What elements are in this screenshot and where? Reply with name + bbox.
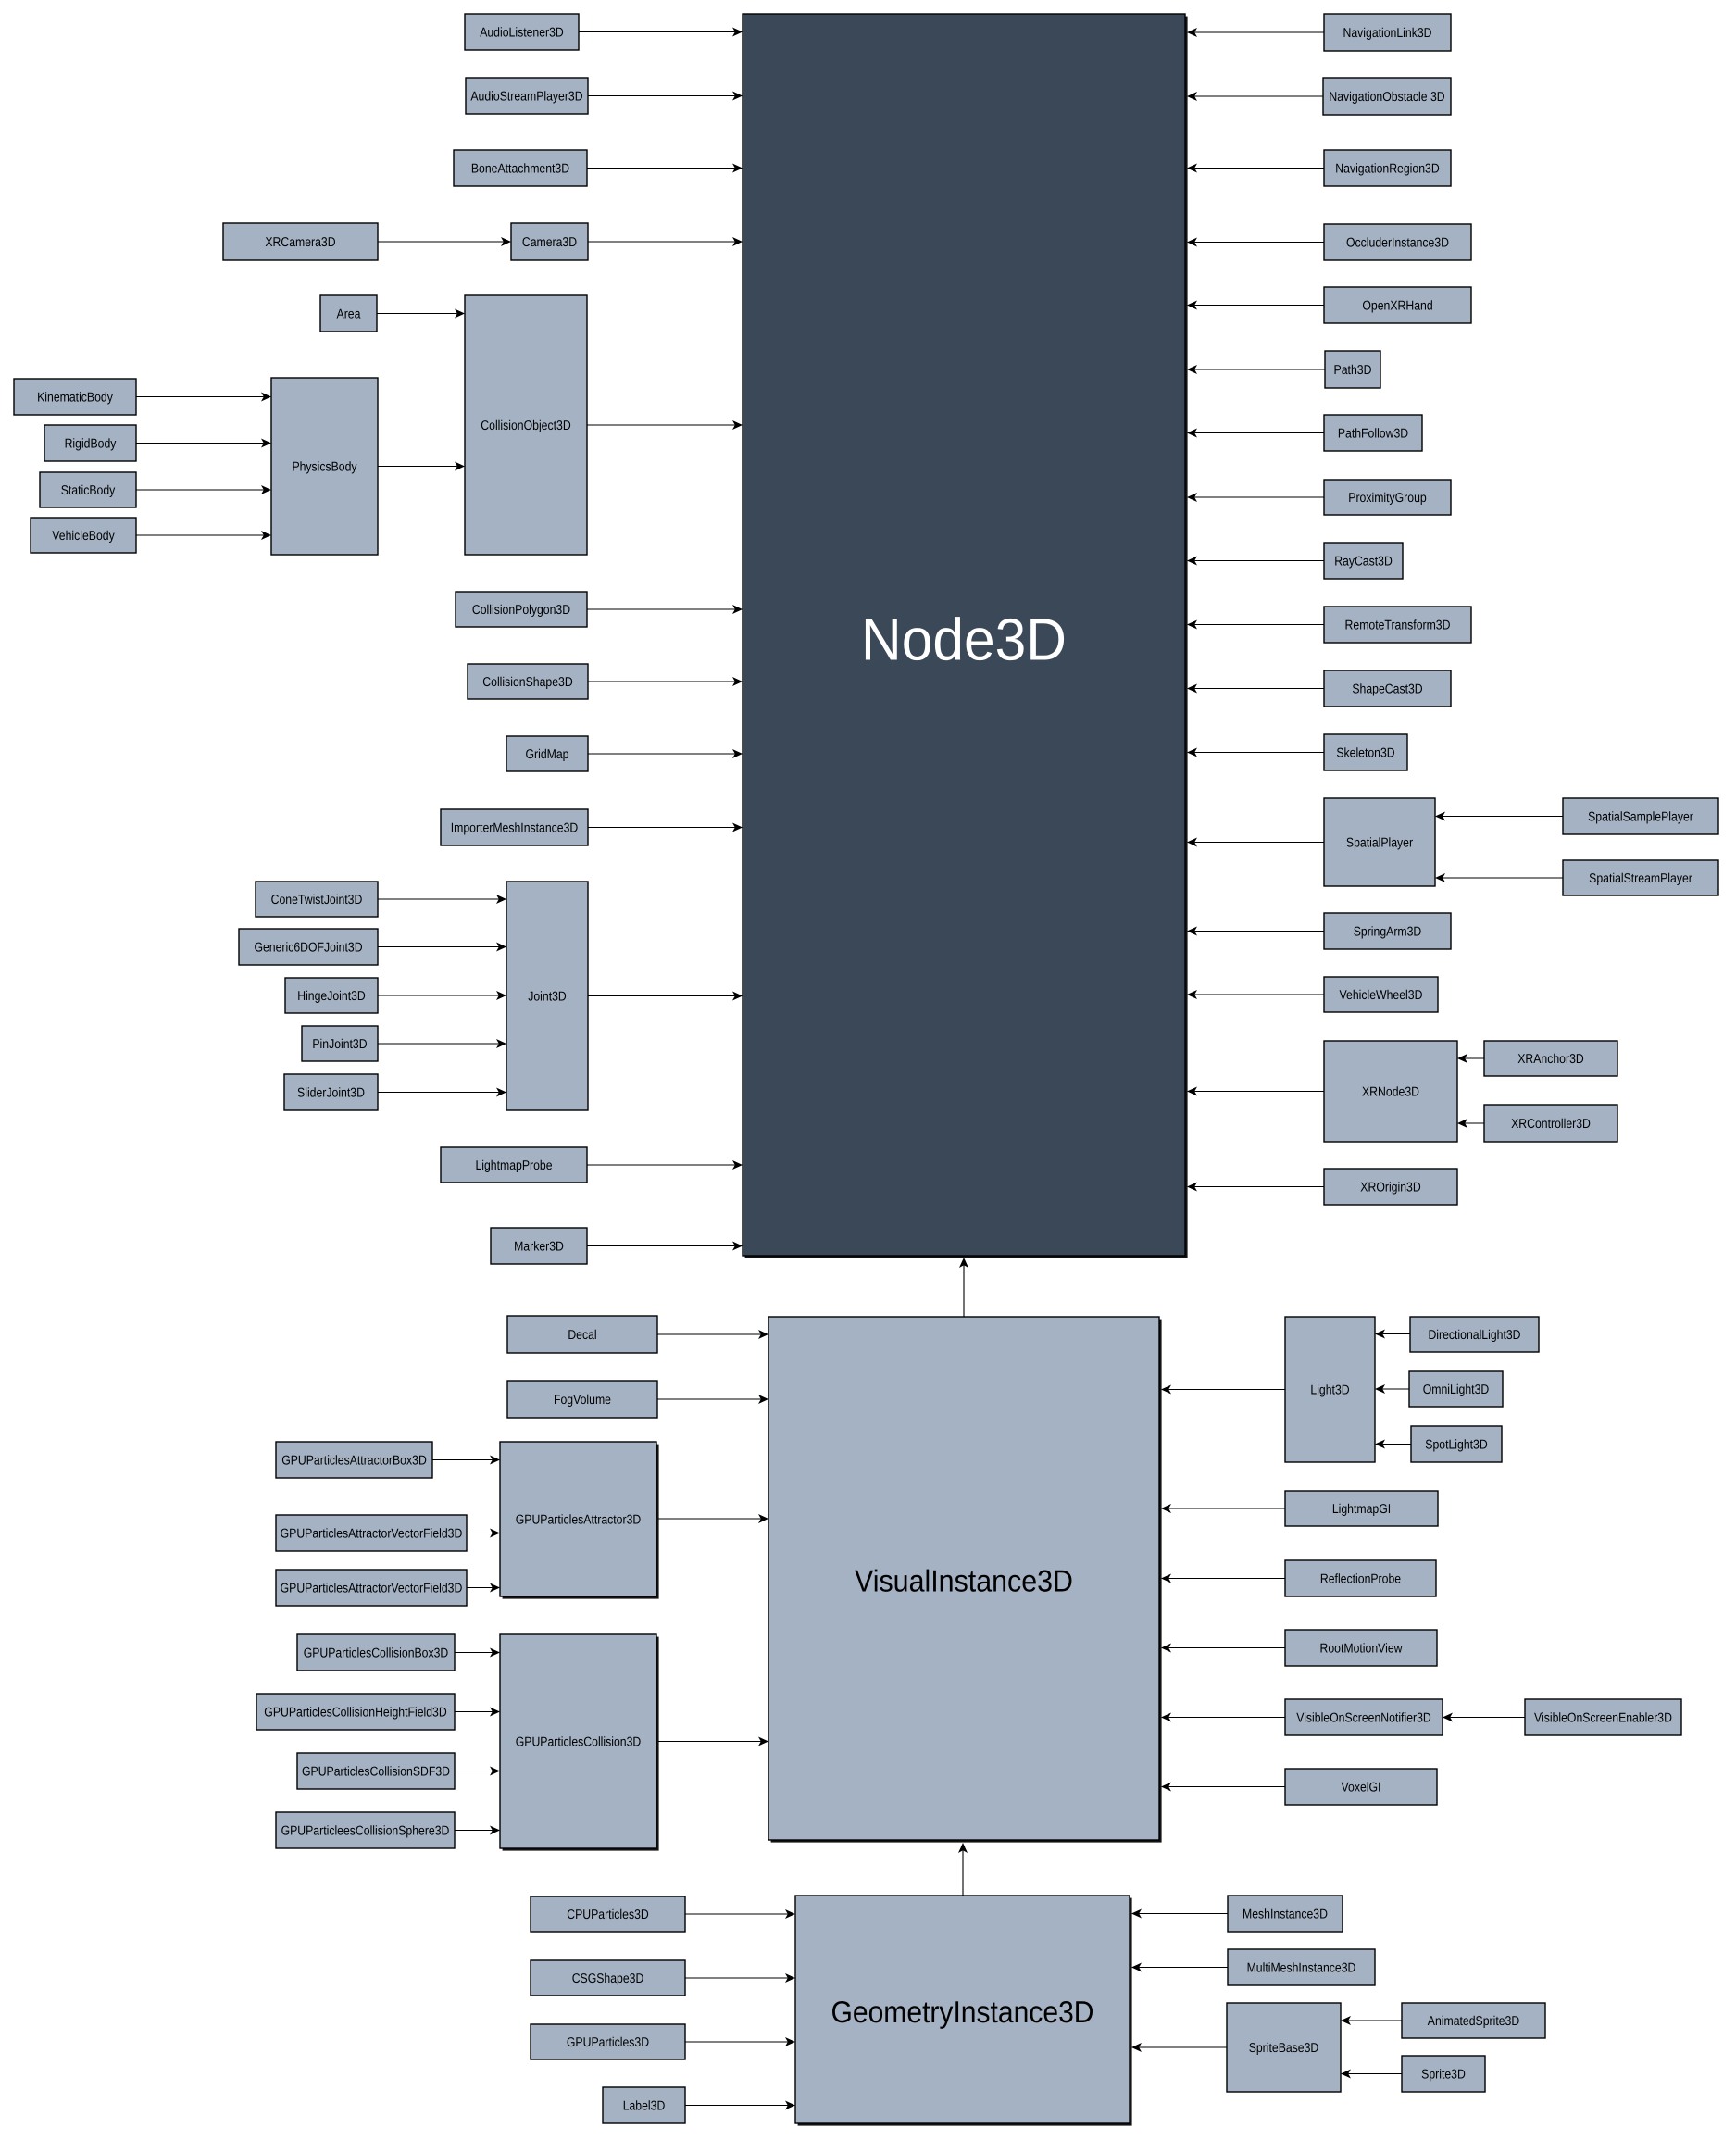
svg-text:Skeleton3D: Skeleton3D <box>1336 746 1394 761</box>
svg-text:NavigationObstacle 3D: NavigationObstacle 3D <box>1329 90 1444 105</box>
svg-text:KinematicBody: KinematicBody <box>37 391 113 406</box>
svg-text:PathFollow3D: PathFollow3D <box>1338 427 1408 442</box>
svg-text:XRNode3D: XRNode3D <box>1362 1085 1419 1100</box>
svg-text:GPUParticlesCollision3D: GPUParticlesCollision3D <box>516 1735 642 1750</box>
svg-text:RemoteTransform3D: RemoteTransform3D <box>1345 619 1451 633</box>
svg-text:CollisionPolygon3D: CollisionPolygon3D <box>472 603 570 618</box>
svg-text:VoxelGI: VoxelGI <box>1342 1781 1381 1796</box>
svg-text:BoneAttachment3D: BoneAttachment3D <box>471 162 569 177</box>
svg-text:CPUParticles3D: CPUParticles3D <box>567 1908 649 1922</box>
svg-text:AnimatedSprite3D: AnimatedSprite3D <box>1428 2014 1519 2029</box>
svg-text:OccluderInstance3D: OccluderInstance3D <box>1346 236 1449 251</box>
svg-text:DirectionalLight3D: DirectionalLight3D <box>1428 1328 1520 1343</box>
svg-text:XRCamera3D: XRCamera3D <box>265 235 335 250</box>
svg-text:CSGShape3D: CSGShape3D <box>572 1971 644 1986</box>
svg-text:VisualInstance3D: VisualInstance3D <box>855 1563 1073 1597</box>
svg-text:SpatialStreamPlayer: SpatialStreamPlayer <box>1589 871 1692 886</box>
svg-text:AudioStreamPlayer3D: AudioStreamPlayer3D <box>470 90 582 105</box>
svg-text:SpatialSamplePlayer: SpatialSamplePlayer <box>1588 810 1693 825</box>
svg-text:RootMotionView: RootMotionView <box>1320 1642 1404 1657</box>
svg-text:ReflectionProbe: ReflectionProbe <box>1320 1572 1401 1587</box>
svg-text:PinJoint3D: PinJoint3D <box>312 1037 367 1052</box>
svg-text:SliderJoint3D: SliderJoint3D <box>297 1086 365 1101</box>
svg-text:CollisionShape3D: CollisionShape3D <box>482 675 572 690</box>
svg-text:GPUParticlesAttractor3D: GPUParticlesAttractor3D <box>516 1513 642 1528</box>
svg-text:VisibleOnScreenNotifier3D: VisibleOnScreenNotifier3D <box>1296 1711 1431 1726</box>
svg-text:StaticBody: StaticBody <box>61 483 116 498</box>
svg-text:MultiMeshInstance3D: MultiMeshInstance3D <box>1247 1961 1356 1976</box>
svg-text:ProximityGroup: ProximityGroup <box>1348 491 1426 506</box>
svg-text:OpenXRHand: OpenXRHand <box>1362 299 1432 314</box>
svg-text:GPUParticlesAttractorVectorFie: GPUParticlesAttractorVectorField3D <box>281 1582 463 1596</box>
svg-text:FogVolume: FogVolume <box>554 1393 611 1408</box>
svg-text:SpriteBase3D: SpriteBase3D <box>1249 2041 1319 2056</box>
svg-text:GPUParticlesAttractorBox3D: GPUParticlesAttractorBox3D <box>281 1454 427 1469</box>
svg-text:GPUParticlesAttractorVectorFie: GPUParticlesAttractorVectorField3D <box>281 1527 463 1542</box>
svg-text:GPUParticlesCollisionSDF3D: GPUParticlesCollisionSDF3D <box>302 1765 450 1780</box>
svg-text:NavigationRegion3D: NavigationRegion3D <box>1335 162 1439 177</box>
svg-text:CollisionObject3D: CollisionObject3D <box>481 419 570 433</box>
svg-text:RayCast3D: RayCast3D <box>1334 555 1393 569</box>
svg-text:AudioListener3D: AudioListener3D <box>480 26 564 41</box>
svg-text:MeshInstance3D: MeshInstance3D <box>1243 1908 1328 1922</box>
svg-text:Label3D: Label3D <box>623 2099 666 2114</box>
svg-text:Path3D: Path3D <box>1334 363 1372 378</box>
svg-text:Light3D: Light3D <box>1310 1383 1349 1398</box>
svg-text:VisibleOnScreenEnabler3D: VisibleOnScreenEnabler3D <box>1534 1711 1672 1726</box>
svg-text:GeometryInstance3D: GeometryInstance3D <box>831 1995 1094 2029</box>
svg-text:Node3D: Node3D <box>861 607 1067 673</box>
svg-text:XRAnchor3D: XRAnchor3D <box>1517 1052 1584 1067</box>
svg-text:Area: Area <box>337 307 361 322</box>
svg-text:Joint3D: Joint3D <box>528 990 567 1005</box>
svg-text:ShapeCast3D: ShapeCast3D <box>1352 682 1422 697</box>
svg-text:SpringArm3D: SpringArm3D <box>1354 925 1422 940</box>
svg-text:OmniLight3D: OmniLight3D <box>1423 1383 1490 1397</box>
svg-text:SpatialPlayer: SpatialPlayer <box>1346 836 1413 851</box>
svg-text:LightmapProbe: LightmapProbe <box>475 1158 552 1173</box>
svg-text:Decal: Decal <box>568 1328 596 1343</box>
svg-text:Marker3D: Marker3D <box>514 1240 564 1255</box>
svg-text:NavigationLink3D: NavigationLink3D <box>1343 26 1432 41</box>
svg-text:ImporterMeshInstance3D: ImporterMeshInstance3D <box>451 821 579 836</box>
svg-text:XRController3D: XRController3D <box>1511 1117 1591 1132</box>
svg-text:GPUParticles3D: GPUParticles3D <box>567 2035 649 2050</box>
svg-text:Generic6DOFJoint3D: Generic6DOFJoint3D <box>254 941 362 956</box>
svg-text:SpotLight3D: SpotLight3D <box>1425 1438 1487 1453</box>
svg-text:PhysicsBody: PhysicsBody <box>292 460 357 475</box>
svg-text:ConeTwistJoint3D: ConeTwistJoint3D <box>271 893 363 907</box>
svg-text:GPUParticlesCollisionHeightFie: GPUParticlesCollisionHeightField3D <box>264 1706 446 1721</box>
svg-text:Sprite3D: Sprite3D <box>1421 2068 1466 2083</box>
svg-text:VehicleBody: VehicleBody <box>52 529 115 544</box>
svg-text:VehicleWheel3D: VehicleWheel3D <box>1340 988 1423 1003</box>
svg-text:GPUParticleesCollisionSphere3D: GPUParticleesCollisionSphere3D <box>281 1824 450 1839</box>
svg-text:HingeJoint3D: HingeJoint3D <box>297 989 366 1004</box>
svg-text:GPUParticlesCollisionBox3D: GPUParticlesCollisionBox3D <box>304 1646 449 1661</box>
svg-text:GridMap: GridMap <box>526 747 569 762</box>
svg-text:RigidBody: RigidBody <box>65 437 118 452</box>
svg-text:Camera3D: Camera3D <box>522 235 577 250</box>
svg-text:XROrigin3D: XROrigin3D <box>1360 1181 1420 1195</box>
svg-text:LightmapGI: LightmapGI <box>1332 1502 1391 1517</box>
